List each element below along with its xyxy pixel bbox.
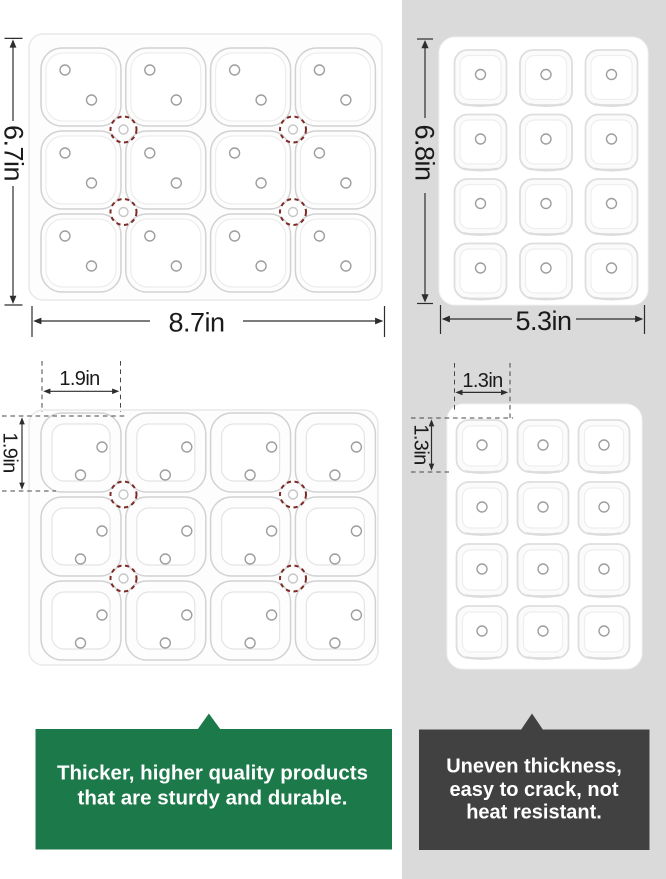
svg-text:1.3in: 1.3in xyxy=(410,424,432,464)
svg-text:1.3in: 1.3in xyxy=(462,370,502,392)
svg-text:6.7in: 6.7in xyxy=(0,125,29,181)
svg-text:1.9in: 1.9in xyxy=(0,432,21,472)
svg-text:5.3in: 5.3in xyxy=(515,306,571,336)
svg-text:1.9in: 1.9in xyxy=(59,368,99,390)
svg-text:heat resistant.: heat resistant. xyxy=(466,802,602,824)
svg-text:Thicker, higher quality produc: Thicker, higher quality products xyxy=(57,762,368,785)
svg-text:easy to crack, not: easy to crack, not xyxy=(450,779,619,801)
svg-text:6.8in: 6.8in xyxy=(410,124,440,180)
svg-text:8.7in: 8.7in xyxy=(168,308,224,338)
svg-text:Uneven thickness,: Uneven thickness, xyxy=(446,756,622,778)
svg-text:that are sturdy and durable.: that are sturdy and durable. xyxy=(78,787,348,810)
